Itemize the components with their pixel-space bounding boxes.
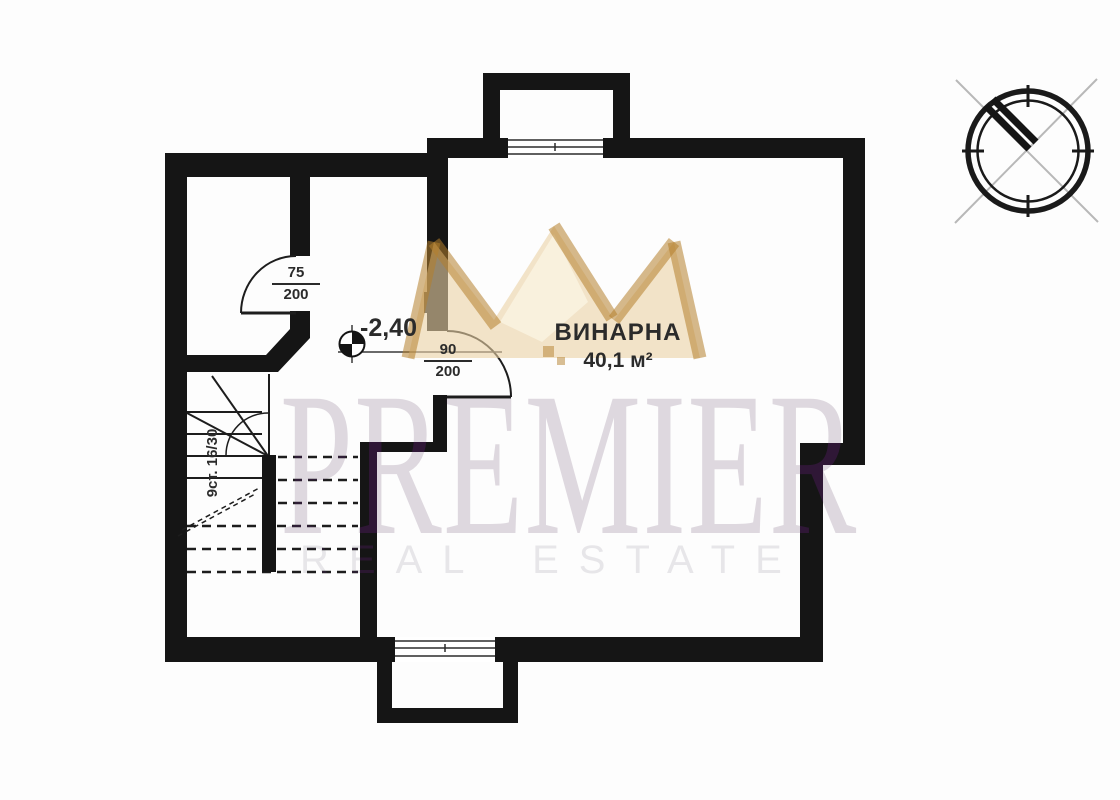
door-75-width: 75 [272, 264, 320, 285]
door-90-size-label: 90 200 [424, 341, 472, 381]
door-90-height: 200 [424, 362, 472, 381]
level-value-label: -2,40 [360, 314, 417, 343]
stairs-label: 9ст. 16/30 [204, 398, 222, 528]
room-area-label: 40,1 м² [563, 349, 673, 373]
crown-square-1 [543, 346, 554, 357]
door-75-height: 200 [272, 285, 320, 304]
floor-plan-page: PREMIER PREMIER REAL ESTATE REAL ESTATE … [0, 0, 1120, 800]
door-75-size-label: 75 200 [272, 264, 320, 304]
door-90-width: 90 [424, 341, 472, 362]
room-name-label: ВИНАРНА [553, 319, 683, 347]
crown-watermark [0, 0, 1120, 800]
